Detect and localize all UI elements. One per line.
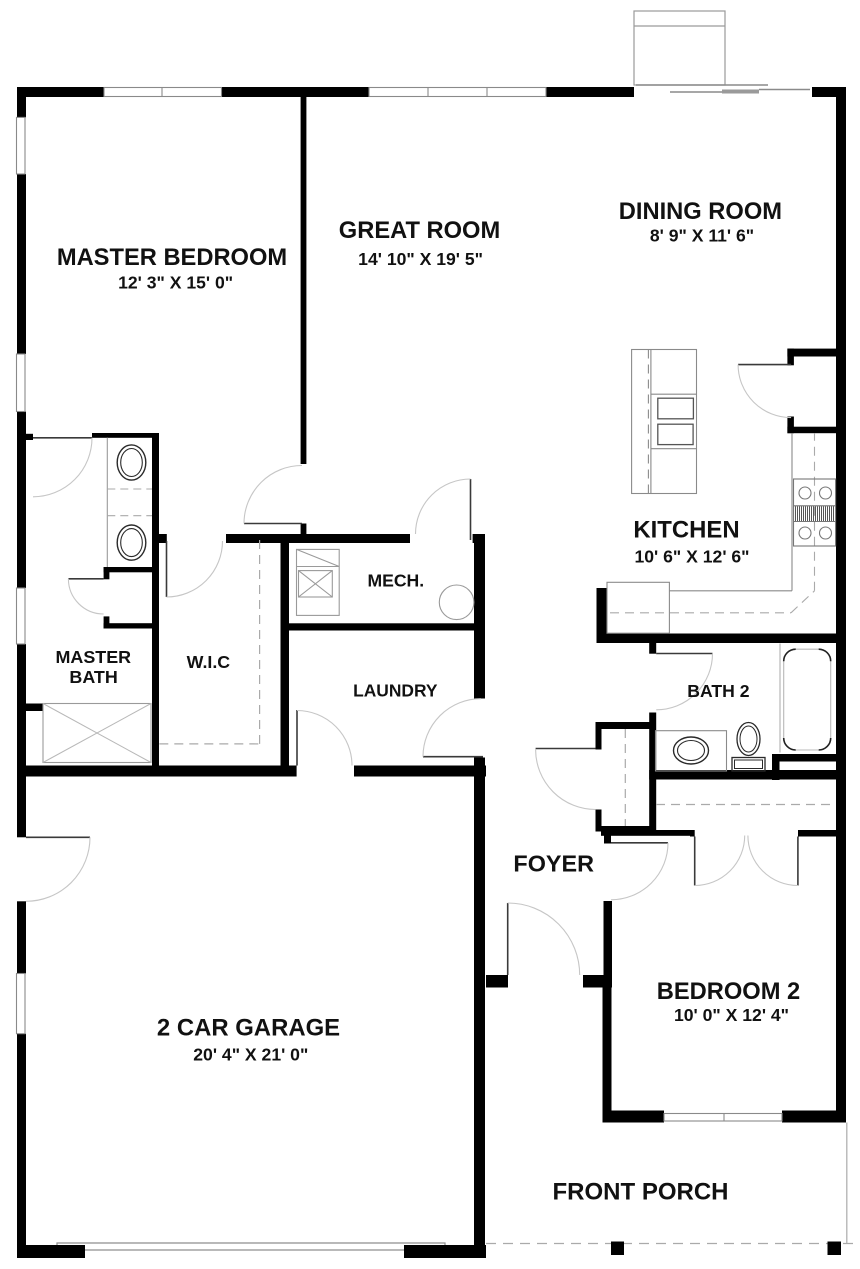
svg-text:14' 10" X 19' 5": 14' 10" X 19' 5" [358, 249, 483, 269]
svg-text:8' 9" X 11' 6": 8' 9" X 11' 6" [650, 226, 754, 246]
svg-text:2 CAR GARAGE: 2 CAR GARAGE [157, 1015, 340, 1042]
svg-text:W.I.C: W.I.C [187, 652, 231, 672]
svg-text:FOYER: FOYER [513, 851, 594, 877]
svg-text:KITCHEN: KITCHEN [633, 517, 739, 544]
svg-text:10' 6" X 12' 6": 10' 6" X 12' 6" [634, 547, 749, 567]
svg-text:BEDROOM 2: BEDROOM 2 [657, 979, 800, 1005]
svg-text:MECH.: MECH. [367, 571, 424, 591]
svg-text:10' 0" X 12' 4": 10' 0" X 12' 4" [674, 1005, 789, 1025]
svg-text:BATH: BATH [69, 667, 117, 687]
svg-text:MASTER BEDROOM: MASTER BEDROOM [57, 245, 287, 271]
svg-text:DINING ROOM: DINING ROOM [619, 199, 782, 225]
svg-text:BATH 2: BATH 2 [687, 681, 749, 701]
svg-text:20' 4" X 21' 0": 20' 4" X 21' 0" [193, 1045, 308, 1065]
svg-text:GREAT ROOM: GREAT ROOM [339, 218, 500, 244]
svg-text:FRONT PORCH: FRONT PORCH [553, 1179, 729, 1206]
svg-text:12' 3" X 15' 0": 12' 3" X 15' 0" [118, 273, 233, 293]
svg-text:MASTER: MASTER [56, 647, 132, 667]
svg-text:LAUNDRY: LAUNDRY [353, 681, 438, 701]
